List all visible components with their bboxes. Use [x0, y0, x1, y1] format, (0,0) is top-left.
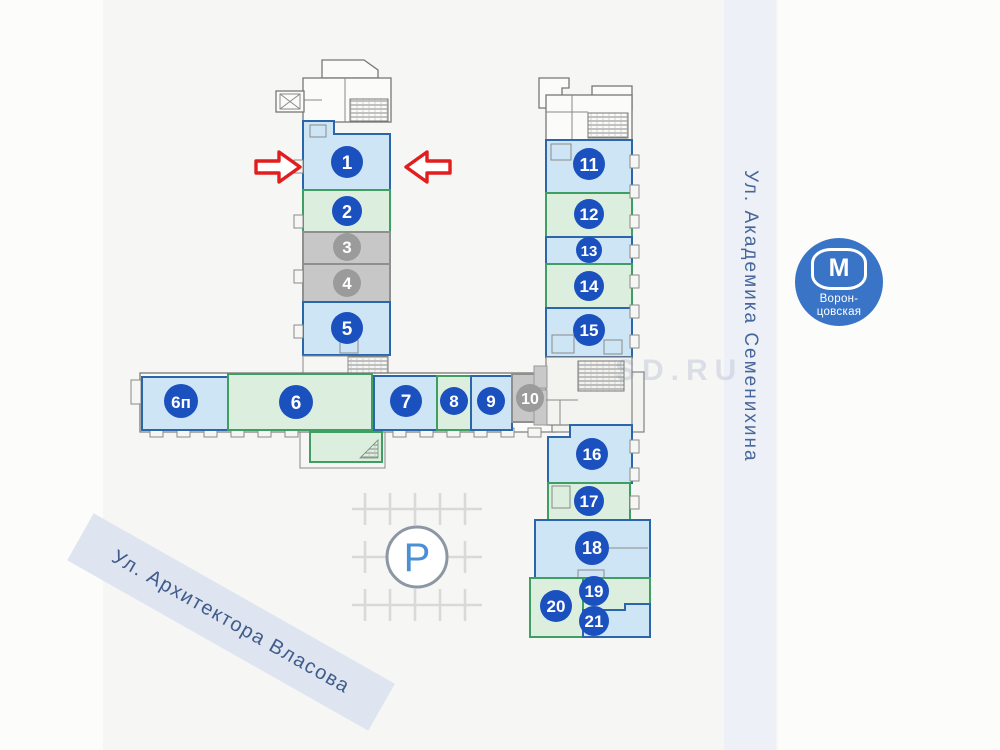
metro-station-name: Ворон- цовская	[795, 293, 883, 319]
unit-15-number: 15	[580, 321, 599, 340]
unit-21-number: 21	[585, 612, 604, 631]
unit-9-number: 9	[486, 392, 495, 411]
unit-1-number: 1	[342, 153, 353, 174]
parking-symbol: P	[404, 536, 431, 580]
unit-3-number: 3	[342, 238, 351, 257]
arrow-left-icon	[406, 152, 450, 182]
metro-m-icon: М	[811, 248, 867, 290]
left-wing-roof-outline	[276, 60, 391, 122]
stairs-icon	[588, 113, 628, 138]
stairs-icon	[348, 356, 388, 374]
unit-4-number: 4	[342, 274, 352, 293]
metro-name-line2: цовская	[795, 306, 883, 319]
metro-name-line1: Ворон-	[795, 293, 883, 306]
floor-plan-svg: 1 2 3 4 5 6п 6 7 8 9 10 11 12	[0, 0, 1000, 750]
unit-18-number: 18	[582, 538, 602, 558]
unit-13-number: 13	[581, 243, 598, 260]
floor-plan-canvas: Ул. Академика Семенихина Ул. Архитектора…	[0, 0, 1000, 750]
unit-6-number: 6	[291, 393, 302, 414]
unit-8-number: 8	[449, 392, 458, 411]
unit-17-number: 17	[580, 492, 599, 511]
right-wing-roof-outline	[539, 78, 632, 140]
unit-11-number: 11	[579, 155, 598, 175]
unit-20-number: 20	[547, 597, 566, 616]
unit-12-number: 12	[580, 205, 599, 224]
metro-badge: М Ворон- цовская	[795, 238, 883, 326]
parking-area: P	[352, 493, 482, 621]
unit-6p-number: 6п	[171, 393, 191, 412]
unit-7-number: 7	[401, 392, 412, 413]
stairs-icon	[578, 361, 624, 391]
unit-5-number: 5	[342, 319, 353, 340]
arrow-right-icon	[256, 152, 300, 182]
unit-14-number: 14	[580, 277, 599, 296]
unit-16-number: 16	[583, 445, 602, 464]
stairs-icon	[350, 99, 388, 121]
unit-2-number: 2	[342, 202, 352, 222]
unit-19-number: 19	[585, 582, 604, 601]
metro-letter: М	[829, 254, 850, 282]
right-wing-corridor	[534, 357, 632, 425]
unit-10-number: 10	[521, 391, 539, 408]
